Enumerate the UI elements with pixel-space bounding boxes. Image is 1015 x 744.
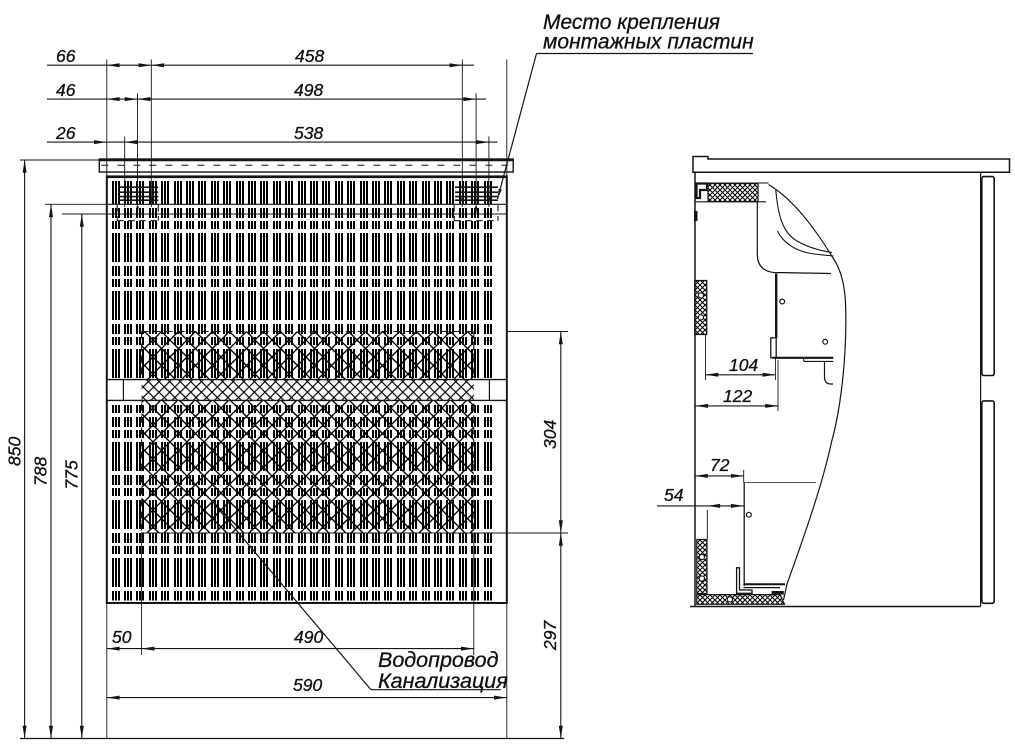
svg-text:66: 66: [56, 46, 76, 66]
svg-text:50: 50: [112, 627, 132, 647]
svg-text:850: 850: [5, 437, 25, 466]
svg-text:788: 788: [31, 457, 51, 486]
svg-text:122: 122: [723, 386, 752, 406]
svg-text:775: 775: [62, 460, 82, 489]
svg-text:54: 54: [664, 485, 684, 505]
svg-text:46: 46: [56, 80, 76, 100]
svg-text:590: 590: [293, 675, 322, 695]
svg-text:Канализация: Канализация: [378, 669, 508, 693]
svg-text:490: 490: [294, 627, 323, 647]
svg-text:458: 458: [295, 46, 324, 66]
svg-text:538: 538: [294, 123, 323, 143]
svg-text:104: 104: [729, 355, 758, 375]
svg-text:монтажных пластин: монтажных пластин: [543, 31, 754, 54]
svg-text:26: 26: [55, 123, 76, 143]
svg-text:297: 297: [540, 620, 560, 651]
svg-text:72: 72: [710, 455, 730, 475]
svg-text:498: 498: [294, 80, 323, 100]
svg-text:304: 304: [540, 420, 560, 449]
